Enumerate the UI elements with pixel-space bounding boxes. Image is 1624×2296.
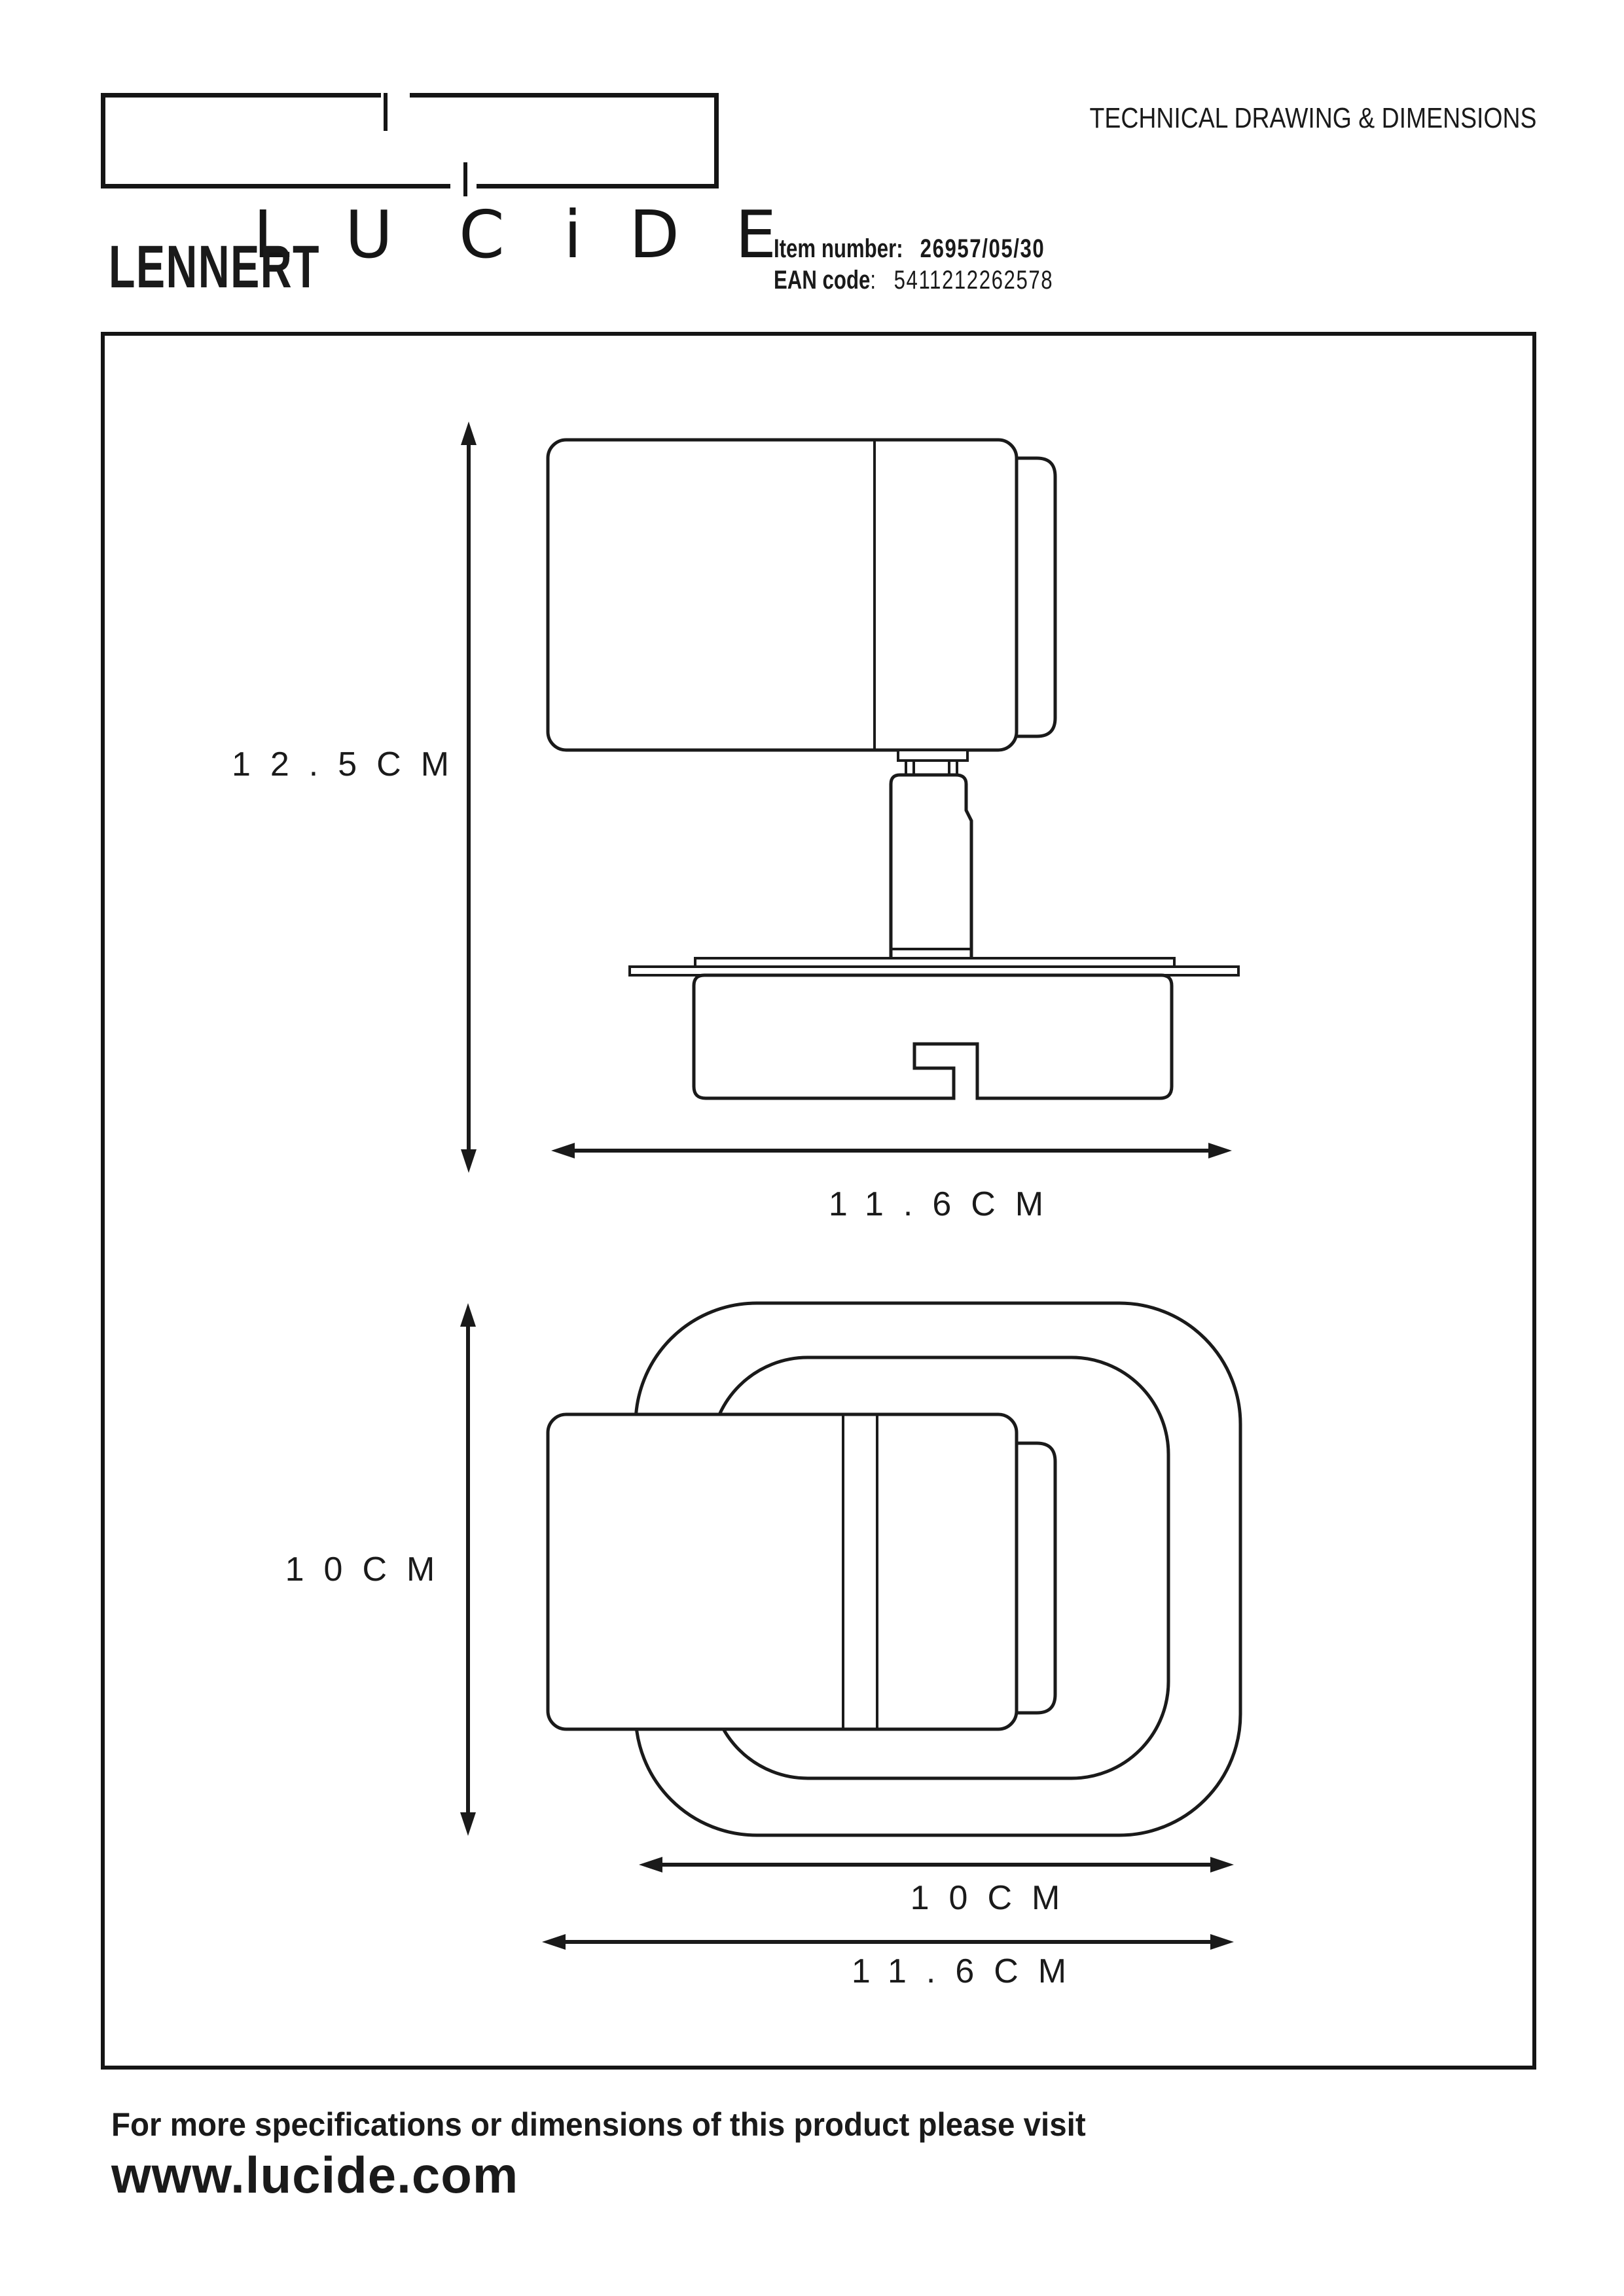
spec-sheet-page: L U C i D E TECHNICAL DRAWING & DIMENSIO… (0, 0, 1624, 2296)
side-view-hinge-flange (898, 750, 967, 761)
side-view-base-canopy (694, 975, 1172, 1098)
side-view-width-label: 11.6CM (829, 1187, 1063, 1221)
side-view-lamp-front-ring (1015, 458, 1055, 736)
top-view-plate-width-arrow (639, 1857, 1234, 1873)
technical-drawing-canvas (0, 0, 1624, 2296)
side-view-height-label: 12.5CM (232, 747, 469, 781)
footer-website: www.lucide.com (111, 2148, 518, 2202)
top-view-overall-width-arrow (542, 1934, 1234, 1950)
side-view-height-arrow (461, 422, 477, 1173)
footer-note: For more specifications or dimensions of… (111, 2106, 1086, 2143)
top-view-overall-width-label: 11.6CM (852, 1954, 1086, 1988)
top-view-lamp-front-ring (1015, 1443, 1055, 1713)
side-view-lamp-head (548, 440, 1017, 750)
side-view-width-arrow (551, 1143, 1232, 1158)
top-view-height-arrow (460, 1303, 476, 1836)
top-view-lamp-head (548, 1414, 1017, 1729)
side-view-stem (891, 775, 971, 960)
top-view-plate-width-label: 10CM (911, 1881, 1080, 1915)
top-view-height-label: 10CM (285, 1552, 455, 1587)
